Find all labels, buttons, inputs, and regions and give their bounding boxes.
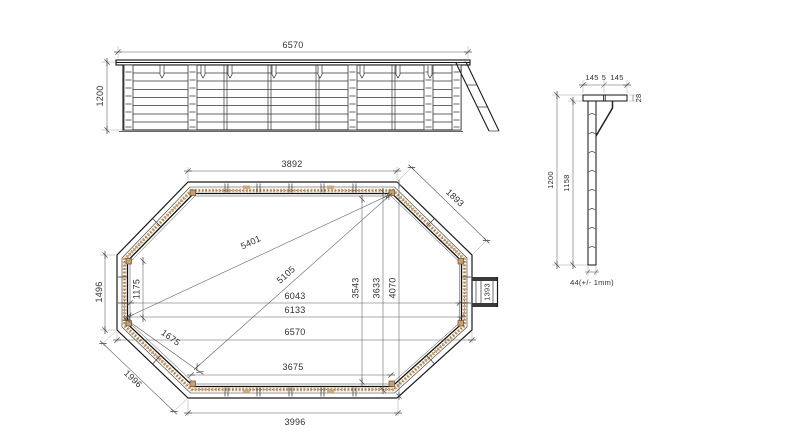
plan-bottomleft-diagonal-label: 1996 bbox=[122, 368, 144, 390]
drawing-sheet: 6570 1200 bbox=[0, 0, 794, 446]
post bbox=[348, 65, 357, 130]
plan-ladder: 1393 bbox=[472, 277, 498, 307]
plan-left-outer-height-label: 1496 bbox=[94, 281, 104, 302]
plan-topright-diagonal-label: 1893 bbox=[444, 187, 466, 209]
drawing-canvas: 6570 1200 bbox=[0, 0, 794, 446]
plan-inner-height-b-label: 3633 bbox=[372, 277, 382, 298]
plan-view: 1393 3892 1893 1496 1175 5401 5105 6043 … bbox=[94, 159, 498, 427]
post bbox=[124, 65, 133, 130]
detail-cap-thickness-label: 28 bbox=[634, 94, 643, 103]
detail-cap-left-label: 145 bbox=[585, 73, 598, 82]
detail-plank-width-label: 44(+/- 1mm) bbox=[570, 278, 614, 287]
post bbox=[188, 65, 197, 130]
elevation-length-label: 6570 bbox=[282, 40, 303, 50]
plan-left-inner-height-label: 1175 bbox=[132, 279, 142, 299]
plan-inner-length-b-label: 6133 bbox=[284, 305, 305, 315]
plan-outer-length-label: 6570 bbox=[284, 327, 305, 337]
detail-cap-right-label: 145 bbox=[610, 73, 623, 82]
plan-ladder-width-label: 1393 bbox=[483, 283, 492, 301]
elevation-ladder bbox=[456, 62, 499, 131]
detail-cap bbox=[583, 95, 627, 101]
plan-outer-height-label: 4070 bbox=[388, 277, 398, 298]
plan-top-width-label: 3892 bbox=[281, 159, 302, 169]
plan-inner-length-a-label: 6043 bbox=[284, 291, 305, 301]
elevation-coping bbox=[116, 60, 470, 65]
detail-brace bbox=[596, 101, 613, 136]
plan-inner-height-a-label: 3543 bbox=[351, 277, 361, 298]
plan-bottom-inner-width-label: 3675 bbox=[282, 362, 303, 372]
detail-height-outer-label: 1200 bbox=[546, 171, 555, 189]
plan-bottom-outer-width-label: 3996 bbox=[284, 417, 305, 427]
detail-cap-gap-label: 5 bbox=[602, 73, 606, 82]
elevation-height-label: 1200 bbox=[95, 85, 105, 106]
post bbox=[452, 65, 461, 130]
detail-height-inner-label: 1158 bbox=[562, 174, 571, 191]
detail-post bbox=[588, 101, 596, 265]
detail-view: 145 5 145 28 1200 1158 44(+/- 1mm) bbox=[546, 73, 643, 287]
elevation-view: 6570 1200 bbox=[95, 40, 499, 132]
